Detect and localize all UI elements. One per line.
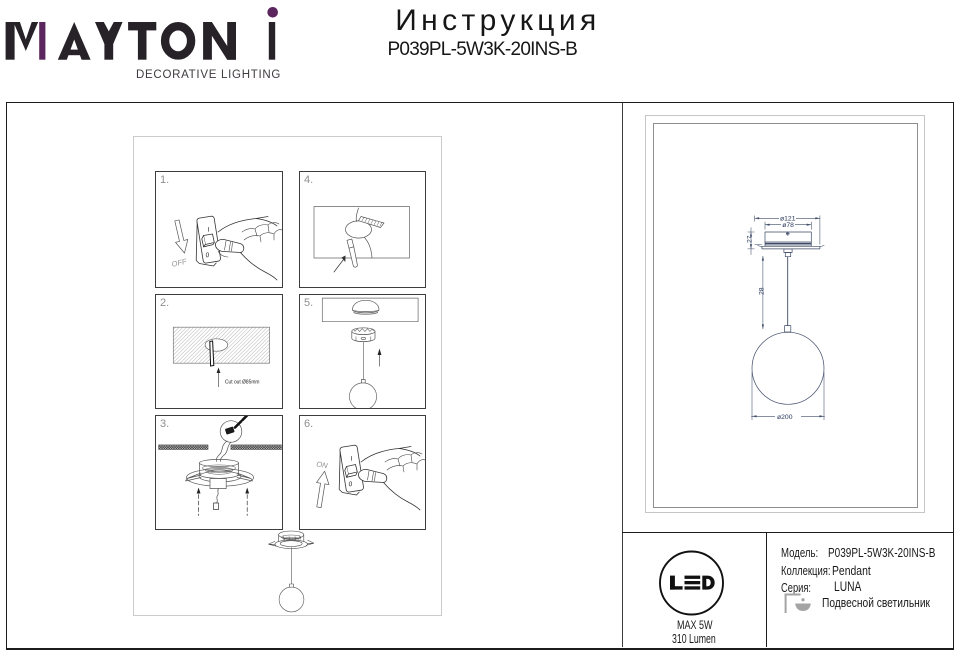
svg-text:27: 27 — [747, 235, 754, 243]
svg-text:ø200: ø200 — [777, 414, 793, 421]
svg-text:Cut out Ø85mm: Cut out Ø85mm — [225, 380, 260, 386]
svg-text:DECORATIVE LIGHTING: DECORATIVE LIGHTING — [136, 69, 281, 81]
svg-text:28: 28 — [758, 287, 765, 295]
svg-text:OFF: OFF — [171, 257, 188, 269]
svg-text:ON: ON — [316, 459, 329, 470]
svg-text:ø78: ø78 — [782, 222, 794, 229]
